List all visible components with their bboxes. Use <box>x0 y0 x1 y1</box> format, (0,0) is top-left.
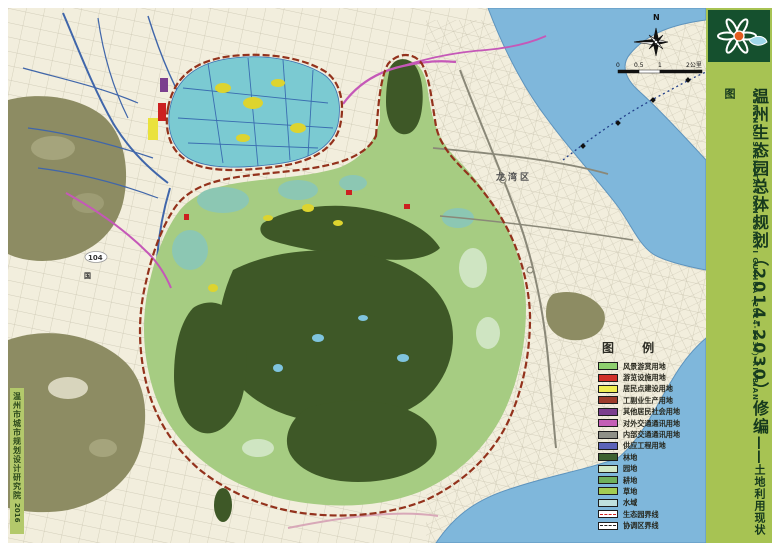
legend-item: 草地 <box>598 487 704 495</box>
logo-icon <box>708 10 770 62</box>
legend-item-label: 林地 <box>623 452 637 462</box>
legend-item: 内部交通通讯用地 <box>598 430 704 438</box>
legend-item-label: 风景游赏用地 <box>623 361 666 371</box>
title-dash: —— <box>751 436 767 464</box>
legend-color-swatch <box>598 385 618 393</box>
legend-item: 游览设施用地 <box>598 373 704 381</box>
legend-item: 其他居民社会用地 <box>598 408 704 416</box>
scale-2: 2公里 <box>686 62 702 69</box>
legend-item: 林地 <box>598 453 704 461</box>
legend-item: 风景游赏用地 <box>598 362 704 370</box>
legend-item: 生态园界线 <box>598 510 704 518</box>
logo <box>708 10 770 62</box>
poster: N 0 0.5 1 2公里 龙湾区 104 国 图 例 风景游赏用地游览设施用地… <box>0 0 780 551</box>
english-title: WENZHOU SHENGTAIYUAN ZONGTI GUIHUA（2014-… <box>750 90 760 401</box>
legend-item-label: 协调区界线 <box>623 520 659 530</box>
legend: 图 例 风景游赏用地游览设施用地居民点建设用地工副业生产用地其他居民社会用地对外… <box>598 339 704 533</box>
legend-rows: 风景游赏用地游览设施用地居民点建设用地工副业生产用地其他居民社会用地对外交通通讯… <box>598 362 704 530</box>
legend-color-swatch <box>598 499 618 507</box>
title-sidebar: 温州生态园总体规划（2014-2030）修编——土地利用现状图 WENZHOU … <box>706 8 772 543</box>
legend-item-label: 内部交通通讯用地 <box>623 429 680 439</box>
north-label: N <box>653 13 660 22</box>
legend-item-label: 生态园界线 <box>623 509 659 519</box>
legend-item-label: 对外交通通讯用地 <box>623 418 680 428</box>
legend-title: 图 例 <box>602 339 704 356</box>
route-word-label: 国 <box>84 271 91 280</box>
legend-item-label: 游览设施用地 <box>623 372 666 382</box>
credit-year: 2016 <box>13 503 21 522</box>
legend-item: 居民点建设用地 <box>598 385 704 393</box>
legend-item-label: 水域 <box>623 498 637 508</box>
legend-color-swatch <box>598 465 618 473</box>
legend-item: 对外交通通讯用地 <box>598 419 704 427</box>
legend-item-label: 工副业生产用地 <box>623 395 673 405</box>
scale-0: 0 <box>616 62 620 69</box>
district-label: 龙湾区 <box>495 171 532 183</box>
legend-item: 水域 <box>598 499 704 507</box>
scale-05: 0.5 <box>634 62 644 69</box>
legend-color-swatch <box>598 362 618 370</box>
map-area: N 0 0.5 1 2公里 龙湾区 104 国 图 例 风景游赏用地游览设施用地… <box>8 8 706 543</box>
legend-item: 园地 <box>598 465 704 473</box>
south-hillock <box>214 488 232 522</box>
legend-item: 工副业生产用地 <box>598 396 704 404</box>
legend-color-swatch <box>598 487 618 495</box>
legend-line-swatch <box>598 510 618 518</box>
legend-color-swatch <box>598 419 618 427</box>
legend-color-swatch <box>598 442 618 450</box>
legend-item-label: 居民点建设用地 <box>623 384 673 394</box>
legend-line-swatch <box>598 522 618 530</box>
legend-item-label: 其他居民社会用地 <box>623 407 680 417</box>
legend-item-label: 耕地 <box>623 475 637 485</box>
legend-color-swatch <box>598 453 618 461</box>
legend-item: 耕地 <box>598 476 704 484</box>
legend-item: 协调区界线 <box>598 521 704 529</box>
credit-strip: 温州市城市规划设计研究院 2016 <box>10 388 24 534</box>
legend-item: 供应工程用地 <box>598 442 704 450</box>
legend-color-swatch <box>598 476 618 484</box>
legend-color-swatch <box>598 374 618 382</box>
legend-color-swatch <box>598 408 618 416</box>
legend-item-label: 供应工程用地 <box>623 441 666 451</box>
legend-item-label: 草地 <box>623 486 637 496</box>
legend-color-swatch <box>598 431 618 439</box>
legend-color-swatch <box>598 396 618 404</box>
scale-1: 1 <box>658 62 662 69</box>
route-number-label: 104 <box>88 254 103 262</box>
legend-item-label: 园地 <box>623 463 637 473</box>
main-title: 温州生态园总体规划（2014-2030）修编——土地利用现状图 <box>714 88 774 540</box>
institute-name: 温州市城市规划设计研究院 <box>12 392 23 500</box>
